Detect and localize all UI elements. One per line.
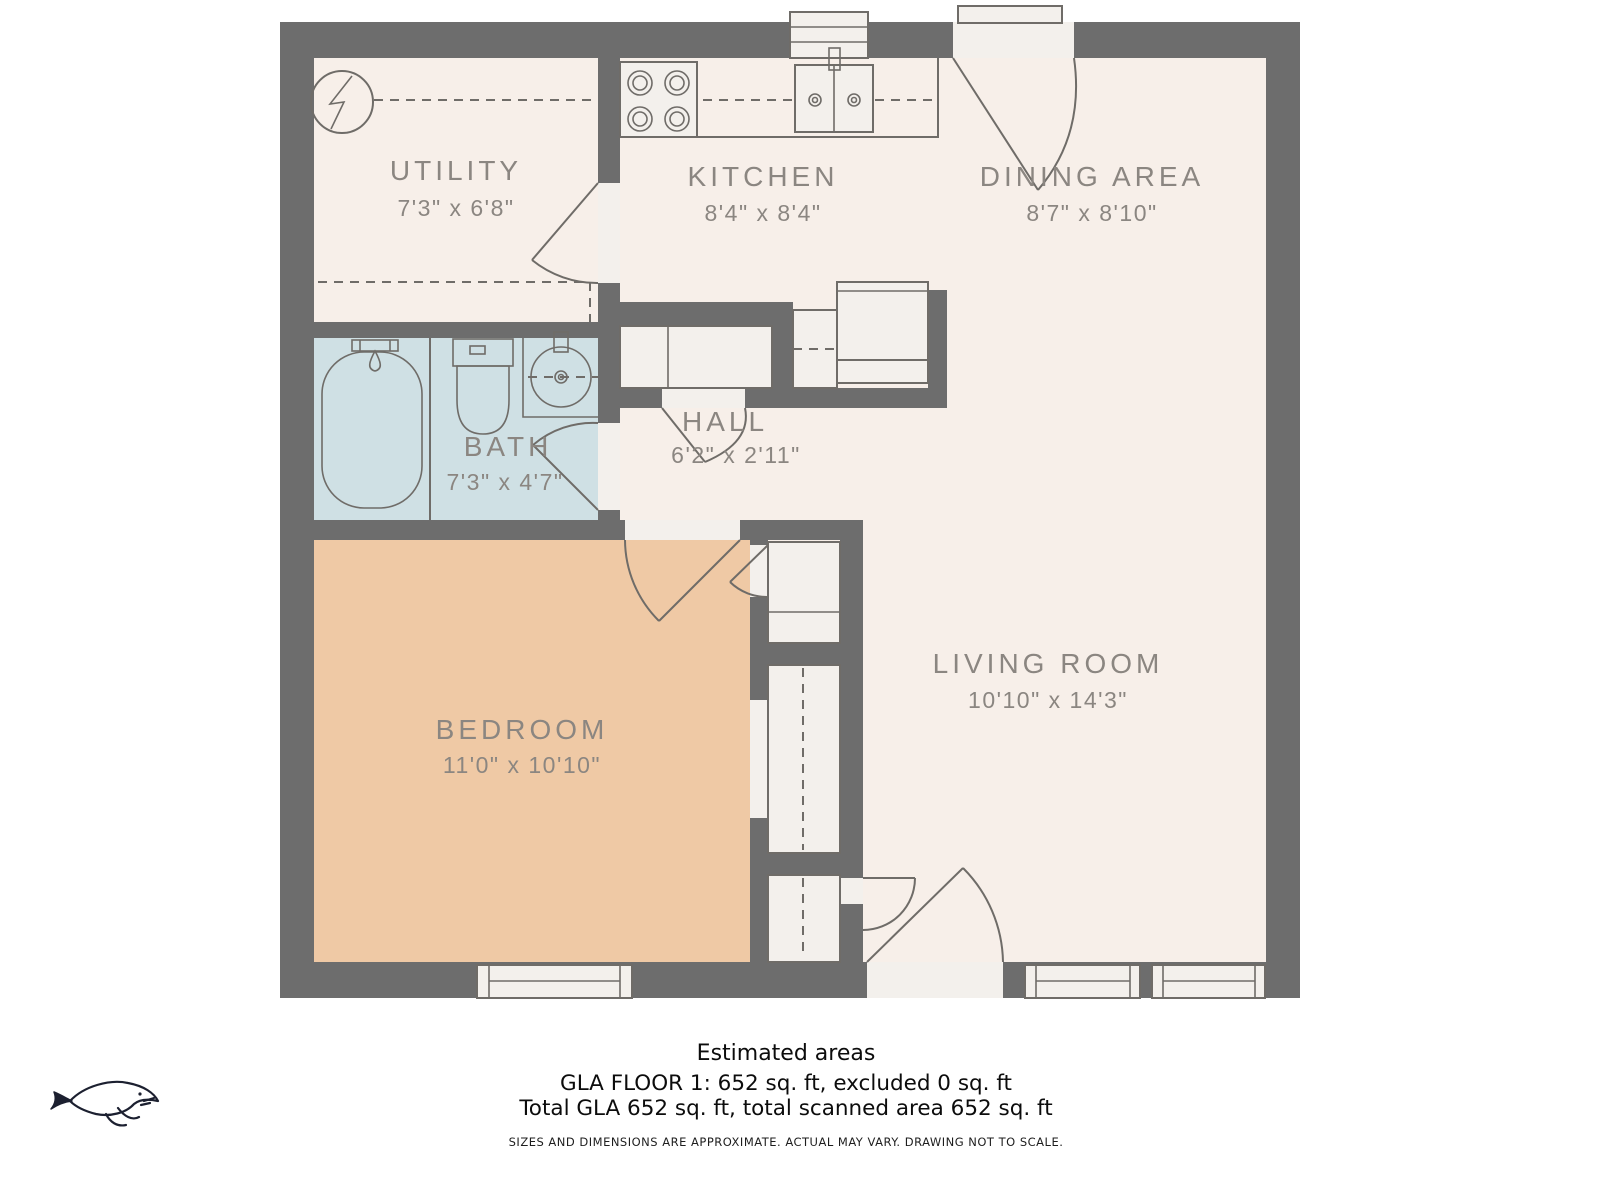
room-dims-utility: 7'3" x 6'8"	[397, 195, 514, 221]
room-label-bath: BATH	[464, 431, 553, 462]
bedroom-closet-top	[768, 542, 840, 643]
room-dims-bath: 7'3" x 4'7"	[446, 469, 563, 495]
floor-plan-canvas: UTILITY 7'3" x 6'8" KITCHEN 8'4" x 8'4" …	[0, 0, 1600, 1200]
closet-bottom	[768, 875, 840, 962]
room-label-hall: HALL	[682, 406, 768, 437]
footer-heading: Estimated areas	[697, 1041, 876, 1066]
footer: Estimated areas GLA FLOOR 1: 652 sq. ft,…	[509, 1041, 1064, 1149]
room-label-dining-area: DINING AREA	[980, 161, 1204, 192]
bedroom-closet-middle	[768, 665, 840, 853]
room-label-bedroom: BEDROOM	[436, 714, 609, 745]
room-dims-living-room: 10'10" x 14'3"	[968, 687, 1128, 713]
room-label-kitchen: KITCHEN	[688, 161, 839, 192]
entry-stoop	[958, 6, 1062, 23]
bedroom-floor	[314, 540, 750, 962]
floor-plan-page: UTILITY 7'3" x 6'8" KITCHEN 8'4" x 8'4" …	[0, 0, 1600, 1200]
room-dims-kitchen: 8'4" x 8'4"	[704, 200, 821, 226]
footer-total-line: Total GLA 652 sq. ft, total scanned area…	[518, 1096, 1052, 1121]
living-window-right-icon	[1152, 965, 1265, 998]
dining-cabinet	[837, 282, 928, 383]
whale-logo	[51, 1082, 158, 1126]
room-dims-bedroom: 11'0" x 10'10"	[443, 752, 601, 778]
bedroom-window-icon	[477, 965, 632, 998]
pantry-niche	[793, 310, 837, 388]
room-dims-hall: 6'2" x 2'11"	[671, 442, 801, 468]
room-label-utility: UTILITY	[390, 155, 522, 186]
hall-closet	[620, 326, 772, 388]
stove-icon	[620, 62, 697, 137]
room-dims-dining-area: 8'7" x 8'10"	[1026, 200, 1157, 226]
living-window-left-icon	[1025, 965, 1140, 998]
room-label-living-room: LIVING ROOM	[933, 648, 1164, 679]
footer-disclaimer: SIZES AND DIMENSIONS ARE APPROXIMATE. AC…	[509, 1135, 1064, 1149]
footer-gla-line: GLA FLOOR 1: 652 sq. ft, excluded 0 sq. …	[560, 1071, 1012, 1096]
